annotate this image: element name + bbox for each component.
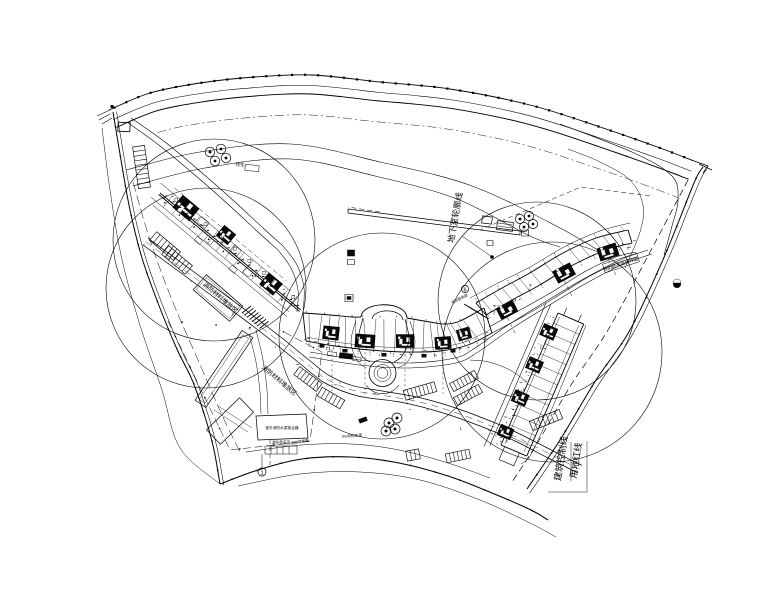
svg-text:6: 6 — [463, 288, 466, 294]
svg-text:1: 1 — [260, 471, 263, 477]
svg-text:绿化: 绿化 — [236, 161, 245, 168]
svg-text:室外消防水泵接合器: 室外消防水泵接合器 — [265, 425, 298, 430]
